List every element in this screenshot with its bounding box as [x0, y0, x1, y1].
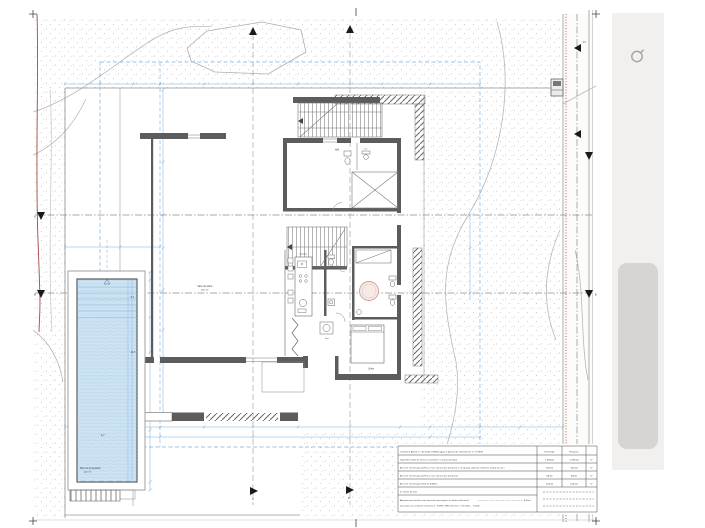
svg-text:160,00: 160,00 — [546, 467, 554, 469]
svg-text:1.098,00: 1.098,00 — [545, 459, 555, 461]
areas-table: Conforme Alvará n.º 617/2021 (PDM Lagoa)… — [397, 444, 598, 514]
table-footnote-a: a) Limite do lote — [400, 491, 418, 494]
round-tub — [360, 282, 379, 301]
retaining-wall-right-upper — [415, 104, 424, 160]
exterior-stair — [298, 103, 382, 137]
svg-text:m²: m² — [590, 474, 593, 477]
room-label-suite: Suite — [368, 368, 374, 371]
pool-lane-dim: 2,7 — [131, 296, 135, 299]
svg-text:1.098,00: 1.098,00 — [569, 459, 579, 461]
svg-text:224,00: 224,00 — [570, 483, 578, 485]
retaining-wall-bottom — [405, 375, 438, 383]
col-proposto: Proposto — [569, 450, 579, 453]
room-label-wc: I.S. — [364, 149, 367, 151]
svg-text:m²: m² — [590, 482, 593, 485]
room-label-living-area: 43,5 m² — [201, 288, 209, 291]
room-label-kitchen: Cozinha — [299, 254, 308, 256]
stair-landing — [293, 97, 380, 103]
bedroom — [351, 325, 384, 363]
setback-note: (de acordo com o alvará de loteamento n.… — [400, 505, 480, 508]
pool-length-dim: 12,5 — [131, 351, 136, 354]
scrollbar-thumb[interactable] — [618, 263, 658, 449]
room-label-laundry: Lav. — [325, 338, 329, 340]
row-label: Superfície Total do Terreno (conforme es… — [400, 458, 458, 461]
laundry — [320, 322, 333, 334]
retaining-wall-right-lower — [413, 248, 422, 366]
row-label: Área de Construção do Piso 1 (inc. área … — [400, 474, 458, 477]
refresh-button[interactable] — [627, 46, 647, 66]
svg-text:160,00: 160,00 — [570, 467, 578, 469]
svg-text:224,00: 224,00 — [546, 483, 554, 485]
pool-width-dim: 4,7 — [101, 434, 105, 437]
room-label-living: Sala de estar — [197, 285, 212, 288]
right-sidebar — [612, 13, 664, 470]
svg-text:84,00: 84,00 — [547, 475, 554, 477]
pool-label: Piscina (proposta) — [80, 467, 101, 470]
svg-text:m²: m² — [590, 466, 593, 469]
rotate-refresh-icon — [627, 46, 647, 66]
pool-steps — [70, 490, 120, 501]
document-viewer: A B B 12 C D — [0, 0, 705, 528]
section-label-d: D — [348, 497, 350, 500]
table-note: Conforme Alvará n.º 617/2021 (PDM Lagoa)… — [400, 450, 483, 453]
svg-text:m²: m² — [590, 458, 593, 461]
front-wall — [133, 413, 298, 422]
row-label: Área de Construção do Piso 0 (inc. área … — [400, 466, 505, 469]
col-permitido: Permitido — [545, 450, 556, 453]
room-label-entry: Hall — [335, 149, 340, 152]
site-plan-drawing: A B B 12 C D — [0, 0, 705, 528]
swimming-pool: 12,5 4,7 2,7 Piscina (proposta) 40,0 m² — [68, 271, 145, 506]
setback-value: 4,00m — [524, 500, 530, 502]
pool-area-label: 40,0 m² — [84, 471, 92, 474]
setback-label: Afastamento frontal (entre área de const… — [400, 499, 469, 502]
svg-text:84,00: 84,00 — [571, 475, 578, 477]
row-label: Área de Construção Total do Edifício — [400, 482, 438, 485]
